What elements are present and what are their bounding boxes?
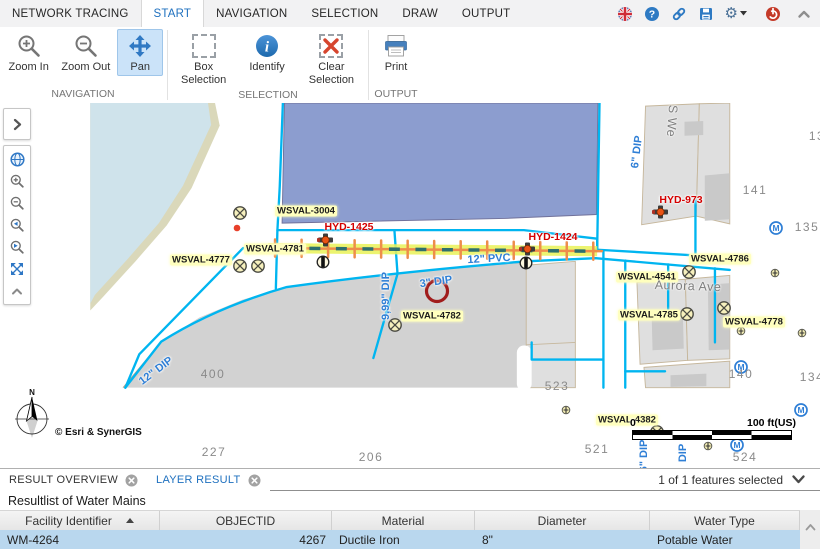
column-header-diameter[interactable]: Diameter xyxy=(475,511,650,530)
box-selection-button[interactable]: Box Selection xyxy=(172,29,235,89)
zoom-in-button[interactable]: Zoom In xyxy=(3,29,54,76)
valve-label: WSVAL-4781 xyxy=(244,244,306,255)
full-screen-button[interactable] xyxy=(6,258,28,280)
valve-marker xyxy=(233,206,248,221)
table-cell: Potable Water xyxy=(650,530,800,549)
zoom-out-icon xyxy=(73,31,99,61)
red-dot-marker xyxy=(233,224,241,232)
power-icon[interactable] xyxy=(765,6,781,22)
collapse-ribbon-icon[interactable] xyxy=(796,7,812,21)
tab-layer-result[interactable]: LAYER RESULT xyxy=(147,469,270,491)
svg-text:M: M xyxy=(772,223,779,233)
valve-label: WSVAL-4777 xyxy=(170,255,232,266)
pipe-size-label: 6" DIP xyxy=(629,135,645,169)
hydrant-marker xyxy=(652,204,670,220)
pipe-size-label: 12" DIP xyxy=(137,355,175,388)
valve-label: WSVAL-3004 xyxy=(275,206,337,217)
hydrant-label: HYD-1424 xyxy=(528,231,577,243)
zoom-out-button[interactable]: Zoom Out xyxy=(56,29,115,76)
small-valve-marker xyxy=(703,441,713,451)
column-header-facility-identifier[interactable]: Facility Identifier xyxy=(0,511,160,530)
scale-start-label: 0 xyxy=(630,417,636,429)
zoom-in-icon xyxy=(16,31,42,61)
print-button[interactable]: Print xyxy=(373,29,419,76)
tab-network-tracing[interactable]: NETWORK TRACING xyxy=(0,0,141,27)
scale-end-label: 100 ft(US) xyxy=(747,417,796,429)
print-icon xyxy=(383,31,409,61)
selection-status: 1 of 1 features selected xyxy=(658,473,783,487)
pan-button[interactable]: Pan xyxy=(117,29,163,76)
table-scrollbar[interactable] xyxy=(800,510,820,549)
street-name: S We xyxy=(664,104,680,137)
check-valve-marker xyxy=(317,255,330,270)
previous-extent-button[interactable] xyxy=(6,214,28,236)
settings-gear-icon[interactable]: ⚙ xyxy=(725,6,748,21)
small-valve-marker xyxy=(770,268,780,278)
identify-button[interactable]: i Identify xyxy=(237,29,297,76)
pipe-size-label: DIP xyxy=(677,444,689,462)
svg-text:M: M xyxy=(797,405,804,415)
svg-text:?: ? xyxy=(648,8,654,20)
scale-bar: 0 100 ft(US) xyxy=(630,417,796,440)
zoom-out-tool-button[interactable] xyxy=(6,192,28,214)
tab-output[interactable]: OUTPUT xyxy=(450,0,522,27)
clear-selection-icon xyxy=(319,31,343,61)
valve-marker xyxy=(682,265,697,280)
identify-label: Identify xyxy=(249,61,284,74)
svg-text:M: M xyxy=(733,440,740,450)
column-header-objectid[interactable]: OBJECTID xyxy=(160,511,332,530)
tab-layer-result-label: LAYER RESULT xyxy=(156,474,241,486)
parcel-number: 140 xyxy=(729,367,754,381)
next-extent-button[interactable] xyxy=(6,236,28,258)
ribbon-tab-bar: NETWORK TRACING START NAVIGATION SELECTI… xyxy=(0,0,820,27)
parcel-number: 521 xyxy=(585,442,610,456)
zoom-in-tool-button[interactable] xyxy=(6,170,28,192)
help-icon[interactable]: ? xyxy=(644,6,660,22)
parcel-number: 206 xyxy=(359,450,384,464)
group-separator xyxy=(368,30,369,100)
map-attribution: © Esri & SynerGIS xyxy=(55,427,142,438)
valve-label: WSVAL-4778 xyxy=(723,317,785,328)
map-canvas[interactable]: MMMMWSVAL-3004WSVAL-4777WSVAL-4781WSVAL-… xyxy=(0,103,820,468)
language-flag-icon[interactable] xyxy=(617,6,633,22)
meter-marker: M xyxy=(794,403,809,418)
pan-icon xyxy=(127,31,153,61)
result-list-title: Resultlist of Water Mains xyxy=(0,491,820,510)
close-icon[interactable] xyxy=(125,474,138,487)
pipe-size-label: 9,99" DIP xyxy=(380,272,392,320)
hydrant-label: HYD-1425 xyxy=(324,221,373,233)
map-overlay: MMMMWSVAL-3004WSVAL-4777WSVAL-4781WSVAL-… xyxy=(0,103,820,468)
clear-selection-button[interactable]: Clear Selection xyxy=(299,29,364,89)
tab-draw[interactable]: DRAW xyxy=(390,0,450,27)
compass-north-label: N xyxy=(29,388,35,397)
check-valve-marker xyxy=(520,256,533,271)
tab-selection[interactable]: SELECTION xyxy=(299,0,390,27)
identify-icon: i xyxy=(254,31,280,61)
link-icon[interactable] xyxy=(671,6,687,22)
zoom-out-label: Zoom Out xyxy=(61,61,110,74)
parcel-number: 135 xyxy=(795,220,820,234)
hydrant-marker xyxy=(317,232,335,248)
tab-result-overview-label: RESULT OVERVIEW xyxy=(9,474,118,486)
expand-panel-button[interactable] xyxy=(3,108,31,140)
box-selection-icon xyxy=(192,31,216,61)
column-header-water-type[interactable]: Water Type xyxy=(650,511,800,530)
parcel-number: 524 xyxy=(733,450,758,464)
valve-label: WSVAL-4785 xyxy=(618,310,680,321)
street-name: Aurora Ave xyxy=(654,278,721,294)
print-label: Print xyxy=(385,61,408,74)
results-panel: RESULT OVERVIEW LAYER RESULT 1 of 1 feat… xyxy=(0,468,820,549)
compass-rose: N xyxy=(6,386,56,444)
tab-start[interactable]: START xyxy=(141,0,205,27)
pipe-size-label: 12" PVC xyxy=(467,252,511,266)
parcel-number: 134 xyxy=(800,370,820,384)
table-cell: WM-4264 xyxy=(0,530,160,549)
chevron-down-icon[interactable] xyxy=(791,473,806,486)
parcel-number: 227 xyxy=(202,445,227,459)
small-valve-marker xyxy=(561,405,571,415)
pipe-size-label: 6" DIP xyxy=(638,440,650,468)
table-header: Facility IdentifierOBJECTIDMaterialDiame… xyxy=(0,510,820,530)
network-tracing-app: NETWORK TRACING START NAVIGATION SELECTI… xyxy=(0,0,820,549)
ribbon-body: Zoom In Zoom Out Pan NAVIGATION xyxy=(0,27,820,104)
tab-result-overview[interactable]: RESULT OVERVIEW xyxy=(0,469,147,491)
table-cell: 8" xyxy=(475,530,650,549)
group-separator xyxy=(167,30,168,100)
parcel-number: 141 xyxy=(743,183,768,197)
parcel-number: 400 xyxy=(201,367,226,381)
valve-marker xyxy=(251,259,266,274)
parcel-number: 13 xyxy=(809,129,820,143)
tab-navigation[interactable]: NAVIGATION xyxy=(204,0,299,27)
table-row[interactable]: WM-42644267Ductile Iron8"Potable Water xyxy=(0,530,820,549)
group-label-navigation: NAVIGATION xyxy=(0,88,166,103)
chevron-right-icon xyxy=(9,116,25,132)
clear-selection-label: Clear Selection xyxy=(302,61,361,87)
small-valve-marker xyxy=(797,328,807,338)
save-icon[interactable] xyxy=(698,6,714,22)
valve-label: WSVAL-4786 xyxy=(689,254,751,265)
valve-label: WSVAL-4782 xyxy=(401,311,463,322)
group-label-selection: SELECTION xyxy=(169,89,367,104)
meter-marker: M xyxy=(769,221,784,236)
ribbon-group-navigation: Zoom In Zoom Out Pan NAVIGATION xyxy=(0,27,166,103)
close-icon[interactable] xyxy=(248,474,261,487)
group-label-output: OUTPUT xyxy=(370,88,422,103)
ribbon-group-selection: Box Selection i Identify Clear Selection… xyxy=(169,27,367,103)
zoom-in-label: Zoom In xyxy=(9,61,49,74)
valve-marker xyxy=(717,301,732,316)
quick-access-bar: ? ⚙ xyxy=(617,0,820,27)
small-valve-marker xyxy=(736,326,746,336)
parcel-number: 523 xyxy=(545,379,570,393)
hydrant-label: HYD-973 xyxy=(659,194,702,206)
valve-marker xyxy=(680,307,695,322)
ribbon-group-output: Print OUTPUT xyxy=(370,27,422,103)
valve-marker xyxy=(233,259,248,274)
column-header-material[interactable]: Material xyxy=(332,511,475,530)
box-selection-label: Box Selection xyxy=(175,61,232,87)
sort-ascending-icon xyxy=(126,518,134,523)
table-cell: Ductile Iron xyxy=(332,530,475,549)
scroll-up-icon[interactable] xyxy=(804,522,817,532)
collapse-toolbar-icon[interactable] xyxy=(6,280,28,302)
map-toolbar xyxy=(3,145,31,305)
results-tab-bar: RESULT OVERVIEW LAYER RESULT 1 of 1 feat… xyxy=(0,469,820,491)
full-extent-globe-button[interactable] xyxy=(6,148,28,170)
pan-label: Pan xyxy=(130,61,150,74)
table-cell: 4267 xyxy=(160,530,332,549)
